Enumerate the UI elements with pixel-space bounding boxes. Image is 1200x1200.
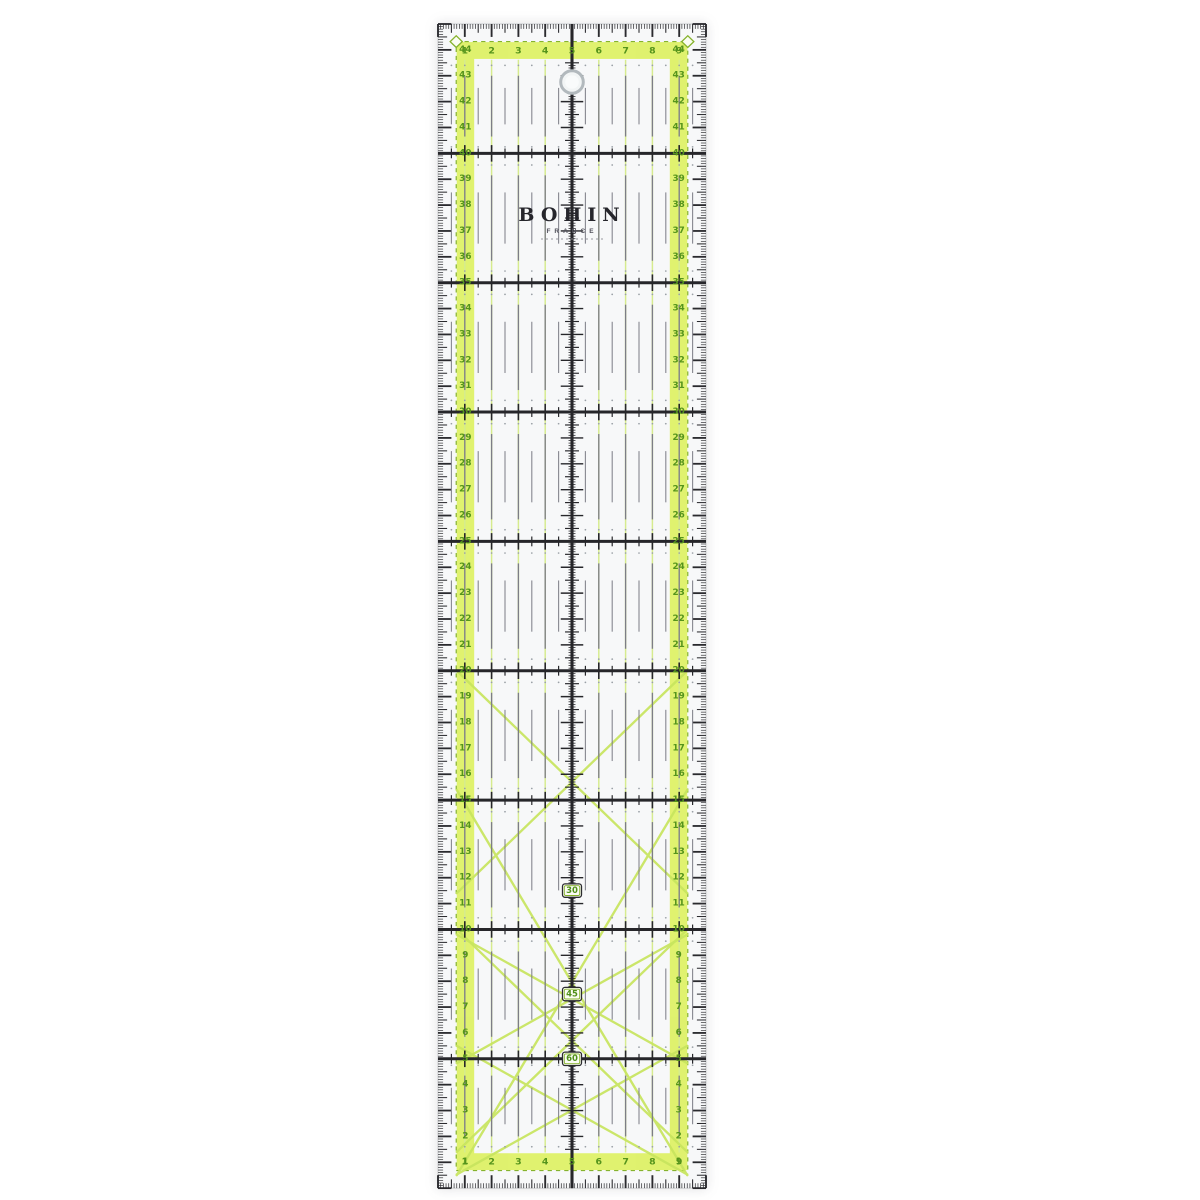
scale-number: 19	[459, 692, 471, 702]
scale-number: 35	[459, 278, 471, 288]
scale-number: 31	[459, 381, 471, 391]
scale-number: 24	[459, 562, 471, 572]
scale-number: 3	[462, 1106, 468, 1116]
brand-name: BOHIN	[518, 204, 625, 226]
scale-number: 25	[459, 536, 471, 546]
scale-number: 27	[459, 485, 471, 495]
scale-number: 8	[676, 976, 682, 986]
scale-number: 44	[459, 45, 471, 55]
scale-number: 26	[673, 511, 685, 521]
scale-number: 30	[673, 407, 685, 417]
scale-number: 1	[462, 1157, 468, 1167]
scale-number: 7	[462, 1002, 468, 1012]
scale-number: 15	[459, 795, 471, 805]
angle-value: 60	[566, 1054, 578, 1064]
scale-number: 2	[488, 46, 495, 57]
scale-number: 20	[673, 666, 685, 676]
scale-number: 20	[459, 666, 471, 676]
scale-number: 10	[673, 925, 685, 935]
scale-number: 14	[459, 821, 471, 831]
scale-number: 39	[459, 174, 471, 184]
hanging-hole	[561, 71, 584, 94]
product-photo-canvas: 1234567891234567894443424140393837363534…	[0, 0, 1200, 1200]
scale-number: 21	[459, 640, 471, 650]
scale-number: 5	[462, 1054, 468, 1064]
scale-number: 36	[459, 252, 471, 262]
scale-number: 6	[596, 1157, 603, 1168]
scale-number: 36	[673, 252, 685, 262]
scale-number: 41	[459, 123, 471, 133]
scale-number: 8	[462, 976, 468, 986]
scale-number: 12	[459, 873, 471, 883]
scale-number: 8	[649, 46, 656, 57]
scale-number: 4	[542, 46, 549, 57]
scale-number: 13	[459, 847, 471, 857]
angle-label-30: 30	[563, 884, 582, 897]
scale-number: 3	[515, 1157, 522, 1168]
scale-number: 17	[673, 743, 685, 753]
scale-number: 28	[459, 459, 471, 469]
scale-number: 3	[676, 1106, 682, 1116]
scale-number: 9	[676, 950, 682, 960]
scale-number: 30	[459, 407, 471, 417]
scale-number: 6	[596, 46, 603, 57]
scale-number: 4	[676, 1080, 682, 1090]
scale-number: 42	[459, 97, 471, 107]
scale-number: 21	[673, 640, 685, 650]
scale-number: 38	[459, 200, 471, 210]
scale-number: 13	[673, 847, 685, 857]
scale-number: 40	[673, 148, 685, 158]
scale-number: 2	[462, 1131, 468, 1141]
scale-number: 11	[459, 899, 471, 909]
scale-number: 34	[673, 304, 685, 314]
angle-label-45: 45	[563, 987, 582, 1000]
scale-number: 7	[622, 46, 629, 57]
scale-number: 42	[673, 97, 685, 107]
scale-number: 39	[673, 174, 685, 184]
scale-number: 37	[673, 226, 685, 236]
scale-number: 23	[459, 588, 471, 598]
ruler-artwork: 1234567891234567894443424140393837363534…	[438, 24, 706, 1188]
quilting-ruler-image: 1234567891234567894443424140393837363534…	[0, 0, 1200, 1200]
scale-number: 19	[673, 692, 685, 702]
scale-number: 29	[459, 433, 471, 443]
scale-number: 12	[673, 873, 685, 883]
scale-number: 7	[676, 1002, 682, 1012]
scale-number: 25	[673, 536, 685, 546]
angle-label-60: 60	[563, 1052, 582, 1065]
brand-country: FRANCE	[546, 228, 597, 235]
scale-number: 26	[459, 511, 471, 521]
scale-number: 37	[459, 226, 471, 236]
scale-number: 16	[459, 769, 471, 779]
scale-number: 8	[649, 1157, 656, 1168]
scale-number: 16	[673, 769, 685, 779]
scale-number: 7	[622, 1157, 629, 1168]
scale-number: 22	[673, 614, 685, 624]
ruler-body: 1234567891234567894443424140393837363534…	[438, 24, 706, 1188]
scale-number: 28	[673, 459, 685, 469]
scale-number: 14	[673, 821, 685, 831]
angle-value: 45	[566, 989, 578, 999]
scale-number: 5	[569, 46, 576, 57]
scale-number: 10	[459, 925, 471, 935]
scale-number: 27	[673, 485, 685, 495]
scale-number: 18	[459, 718, 471, 728]
scale-number: 35	[673, 278, 685, 288]
angle-value: 30	[566, 886, 578, 896]
scale-number: 23	[673, 588, 685, 598]
scale-number: 32	[459, 355, 471, 365]
scale-number: 44	[673, 45, 685, 55]
scale-number: 43	[459, 71, 471, 81]
scale-number: 41	[673, 123, 685, 133]
scale-number: 32	[673, 355, 685, 365]
hole-center	[565, 75, 579, 89]
scale-number: 33	[673, 330, 685, 340]
scale-number: 29	[673, 433, 685, 443]
scale-number: 40	[459, 148, 471, 158]
scale-number: 33	[459, 330, 471, 340]
scale-number: 6	[462, 1028, 468, 1038]
scale-number: 9	[462, 950, 468, 960]
scale-number: 6	[676, 1028, 682, 1038]
scale-number: 22	[459, 614, 471, 624]
scale-number: 5	[676, 1054, 682, 1064]
scale-number: 4	[542, 1157, 549, 1168]
scale-number: 2	[488, 1157, 495, 1168]
scale-number: 24	[673, 562, 685, 572]
scale-number: 15	[673, 795, 685, 805]
scale-number: 17	[459, 743, 471, 753]
scale-number: 3	[515, 46, 522, 57]
scale-number: 2	[676, 1131, 682, 1141]
scale-number: 43	[673, 71, 685, 81]
scale-number: 11	[673, 899, 685, 909]
scale-number: 1	[676, 1157, 682, 1167]
scale-number: 38	[673, 200, 685, 210]
scale-number: 4	[462, 1080, 468, 1090]
scale-number: 31	[673, 381, 685, 391]
scale-number: 34	[459, 304, 471, 314]
scale-number: 5	[569, 1157, 576, 1168]
scale-number: 18	[673, 718, 685, 728]
